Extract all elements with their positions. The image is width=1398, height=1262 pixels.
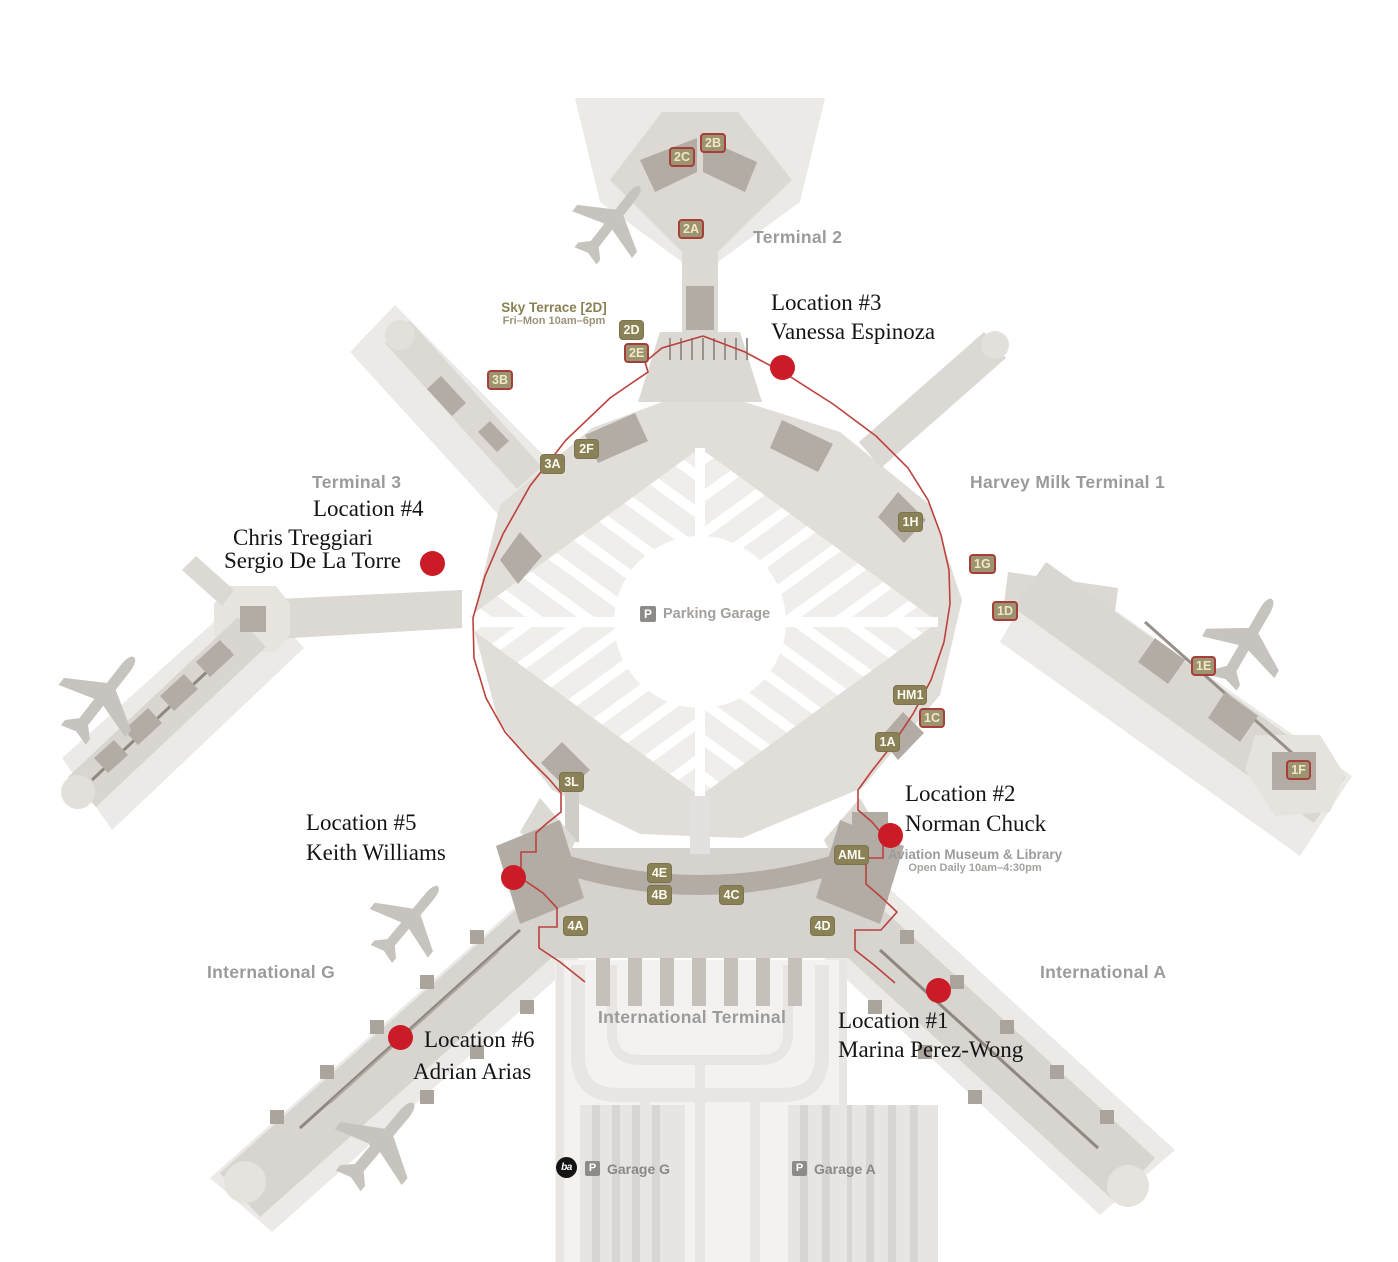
- garage-g-parking-icon: P: [585, 1161, 600, 1176]
- gate-label-AML: AML: [834, 845, 869, 865]
- gate-label-3A: 3A: [540, 454, 565, 474]
- airport-map: Terminal 2 Terminal 3 Harvey Milk Termin…: [0, 0, 1398, 1262]
- location-5-artist: Keith Williams: [306, 840, 446, 866]
- location-1-dot[interactable]: [926, 978, 951, 1003]
- parking-garage-label: Parking Garage: [663, 606, 770, 622]
- bart-icon: ba: [556, 1157, 577, 1178]
- gate-label-2C: 2C: [669, 147, 695, 167]
- aviation-museum-title: Aviation Museum & Library: [865, 847, 1085, 862]
- location-2-title: Location #2: [905, 781, 1016, 807]
- location-1-title: Location #1: [838, 1008, 949, 1034]
- garage-a-label: Garage A: [814, 1161, 876, 1177]
- gate-label-4A: 4A: [563, 916, 588, 936]
- international-terminal-label: International Terminal: [598, 1007, 786, 1028]
- location-5-title: Location #5: [306, 810, 417, 836]
- terminal2-label: Terminal 2: [753, 227, 842, 248]
- sky-terrace-title: Sky Terrace [2D]: [454, 300, 654, 315]
- location-2-dot[interactable]: [878, 823, 903, 848]
- gate-label-1D: 1D: [992, 601, 1018, 621]
- aviation-museum-hours: Open Daily 10am–4:30pm: [865, 862, 1085, 874]
- gate-label-2A: 2A: [678, 219, 704, 239]
- gate-label-1H: 1H: [898, 512, 923, 532]
- gate-label-2B: 2B: [700, 133, 726, 153]
- map-canvas: [0, 0, 1398, 1262]
- location-3-title: Location #3: [771, 290, 882, 316]
- gate-label-3B: 3B: [487, 370, 513, 390]
- garage-g-label: Garage G: [607, 1161, 670, 1177]
- gate-label-1A: 1A: [875, 732, 900, 752]
- gate-label-2D: 2D: [619, 320, 644, 340]
- aviation-museum-note: Aviation Museum & Library Open Daily 10a…: [865, 847, 1085, 874]
- gate-label-2F: 2F: [574, 439, 599, 459]
- gate-label-4B: 4B: [647, 885, 672, 905]
- location-4-artist2: Sergio De La Torre: [224, 548, 401, 574]
- location-5-dot[interactable]: [501, 865, 526, 890]
- gate-label-4D: 4D: [810, 916, 835, 936]
- gate-label-4E: 4E: [647, 863, 672, 883]
- gate-label-1E: 1E: [1191, 656, 1216, 676]
- gate-label-1G: 1G: [969, 554, 996, 574]
- location-4-title: Location #4: [313, 496, 424, 522]
- location-2-artist: Norman Chuck: [905, 811, 1046, 837]
- location-3-artist: Vanessa Espinoza: [771, 319, 935, 345]
- terminal3-label: Terminal 3: [312, 472, 401, 493]
- gate-label-1F: 1F: [1286, 760, 1311, 780]
- location-6-artist: Adrian Arias: [413, 1059, 531, 1085]
- location-6-dot[interactable]: [388, 1025, 413, 1050]
- gate-label-3L: 3L: [559, 772, 584, 792]
- location-3-dot[interactable]: [770, 355, 795, 380]
- gate-label-1C: 1C: [919, 708, 945, 728]
- airplane-icon: [352, 862, 467, 978]
- location-6-title: Location #6: [424, 1027, 535, 1053]
- gate-label-HM1: HM1: [893, 685, 927, 705]
- garage-a-parking-icon: P: [792, 1161, 807, 1176]
- location-1-artist: Marina Perez-Wong: [838, 1037, 1023, 1063]
- international-g-label: International G: [207, 962, 335, 983]
- parking-icon: P: [640, 606, 656, 622]
- gate-label-4C: 4C: [719, 885, 744, 905]
- location-4-dot[interactable]: [420, 551, 445, 576]
- gate-label-2E: 2E: [624, 343, 649, 363]
- harvey-milk-terminal1-label: Harvey Milk Terminal 1: [970, 472, 1165, 493]
- international-a-label: International A: [1040, 962, 1166, 983]
